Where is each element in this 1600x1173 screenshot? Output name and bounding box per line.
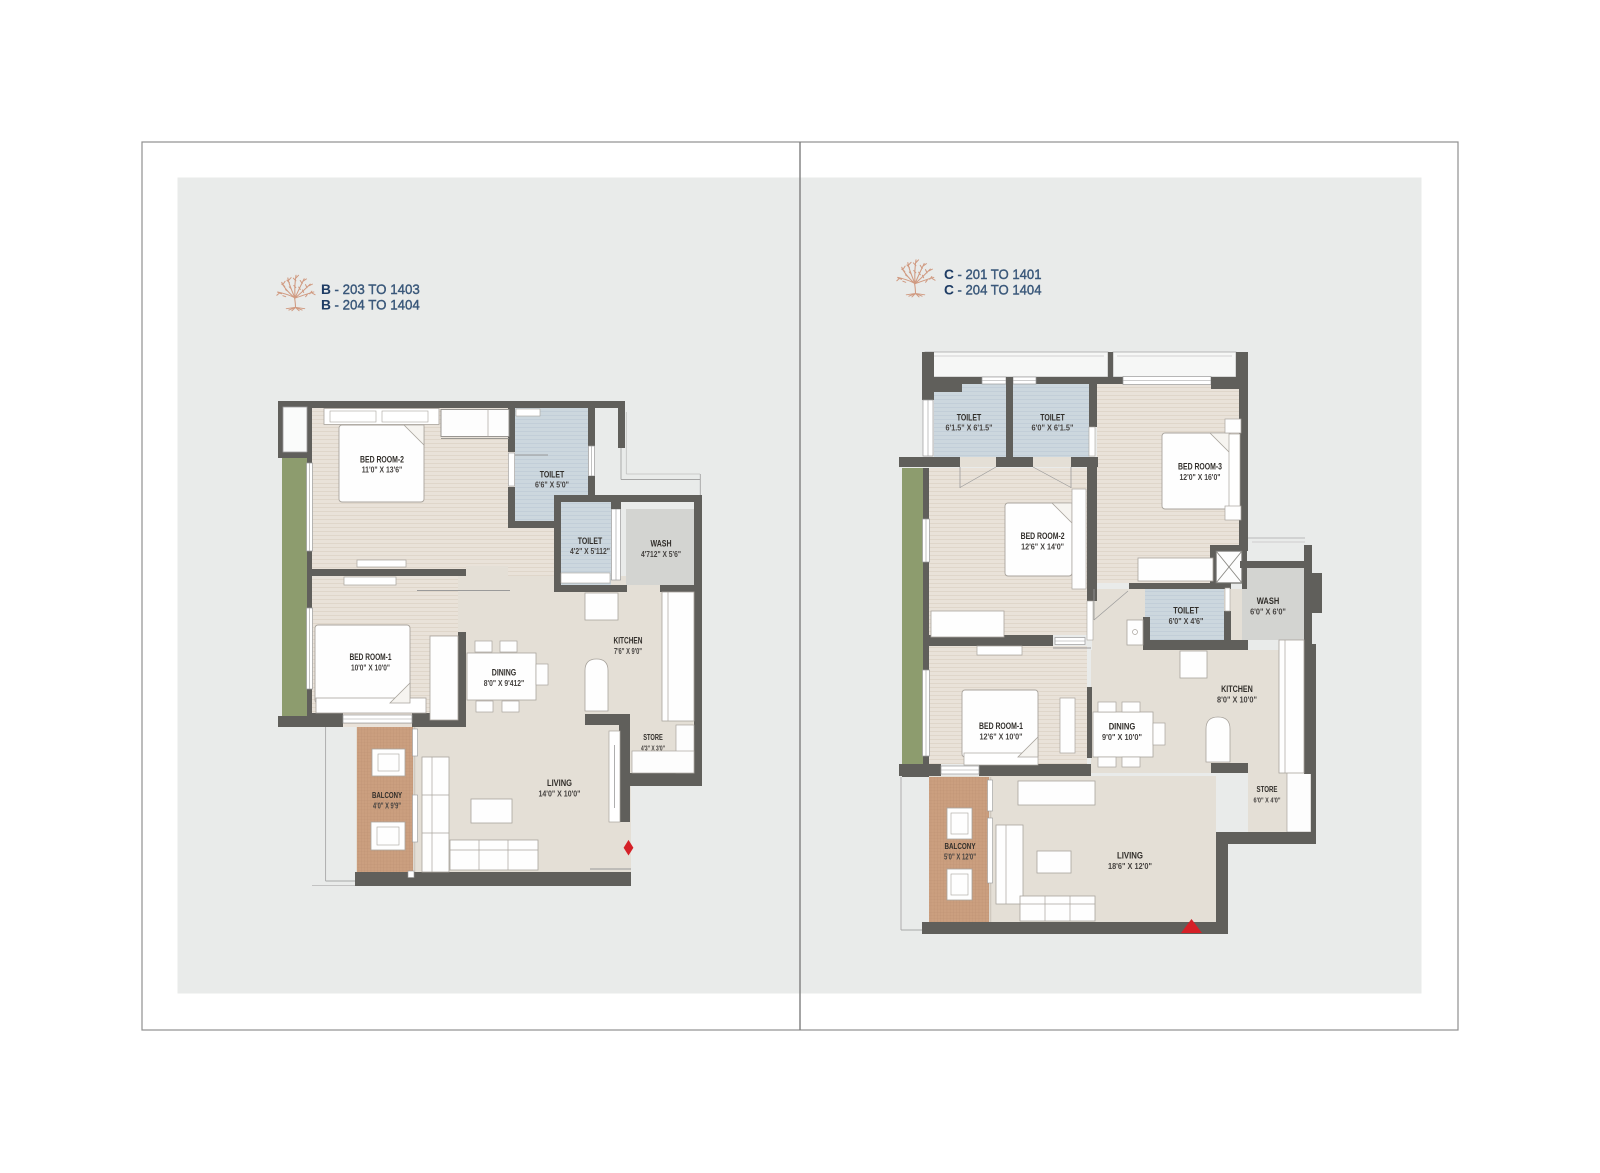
svg-text:KITCHEN: KITCHEN xyxy=(614,636,643,646)
svg-text:BED ROOM-3: BED ROOM-3 xyxy=(1178,462,1222,472)
svg-text:LIVING: LIVING xyxy=(547,778,572,788)
svg-text:STORE: STORE xyxy=(643,733,663,742)
svg-text:6'6" X 5'0": 6'6" X 5'0" xyxy=(535,480,569,490)
svg-text:6'0" X 6'0": 6'0" X 6'0" xyxy=(1250,607,1286,617)
svg-text:6'0" X 4'6": 6'0" X 4'6" xyxy=(1169,616,1204,626)
svg-text:LIVING: LIVING xyxy=(1117,851,1143,861)
svg-text:11'0" X 13'6": 11'0" X 13'6" xyxy=(362,465,403,475)
svg-text:10'0" X 10'0": 10'0" X 10'0" xyxy=(351,662,390,672)
svg-text:6'0" X 6'1.5": 6'0" X 6'1.5" xyxy=(1032,423,1074,433)
svg-text:BALCONY: BALCONY xyxy=(372,791,402,800)
svg-text:7'6" X 9'0": 7'6" X 9'0" xyxy=(614,646,642,656)
svg-text:5'0" X 12'0": 5'0" X 12'0" xyxy=(944,853,976,862)
svg-text:TOILET: TOILET xyxy=(1173,606,1199,616)
svg-text:BED ROOM-1: BED ROOM-1 xyxy=(979,721,1023,731)
svg-text:- 204 TO 1404: - 204 TO 1404 xyxy=(335,298,421,313)
svg-text:4'0" X 9'9": 4'0" X 9'9" xyxy=(373,802,401,811)
svg-text:DINING: DINING xyxy=(1109,722,1136,732)
svg-text:C: C xyxy=(944,267,954,282)
svg-text:8'0" X 10'0": 8'0" X 10'0" xyxy=(1217,695,1257,705)
svg-text:TOILET: TOILET xyxy=(540,469,565,479)
svg-text:6'0" X 4'0": 6'0" X 4'0" xyxy=(1254,796,1281,805)
svg-text:C: C xyxy=(944,283,954,298)
svg-text:4'2" X 5'112": 4'2" X 5'112" xyxy=(570,546,610,556)
svg-text:18'6" X 12'0": 18'6" X 12'0" xyxy=(1108,861,1152,871)
svg-text:TOILET: TOILET xyxy=(578,536,603,546)
svg-text:12'6" X 10'0": 12'6" X 10'0" xyxy=(980,732,1023,742)
svg-text:B: B xyxy=(321,282,331,297)
svg-text:BED ROOM-1: BED ROOM-1 xyxy=(350,652,392,662)
svg-text:- 203 TO 1403: - 203 TO 1403 xyxy=(335,282,421,297)
svg-text:12'0" X 16'0": 12'0" X 16'0" xyxy=(1180,472,1221,482)
svg-text:KITCHEN: KITCHEN xyxy=(1221,684,1253,694)
svg-text:BED ROOM-2: BED ROOM-2 xyxy=(1021,531,1065,541)
svg-text:BED ROOM-2: BED ROOM-2 xyxy=(360,454,404,464)
svg-text:BALCONY: BALCONY xyxy=(945,842,976,851)
svg-text:DINING: DINING xyxy=(492,668,516,678)
svg-text:8'0" X 9'412": 8'0" X 9'412" xyxy=(484,678,525,688)
svg-text:12'6" X 14'0": 12'6" X 14'0" xyxy=(1021,542,1064,552)
svg-text:- 201 TO 1401: - 201 TO 1401 xyxy=(958,267,1042,282)
svg-text:TOILET: TOILET xyxy=(1040,412,1065,422)
svg-text:STORE: STORE xyxy=(1257,785,1278,794)
svg-text:9'0" X 10'0": 9'0" X 10'0" xyxy=(1102,732,1142,742)
svg-text:B: B xyxy=(321,298,331,313)
svg-text:TOILET: TOILET xyxy=(957,412,982,422)
svg-text:WASH: WASH xyxy=(651,539,672,549)
svg-text:- 204 TO 1404: - 204 TO 1404 xyxy=(958,283,1042,298)
svg-text:4'712" X 5'6": 4'712" X 5'6" xyxy=(641,549,681,559)
svg-text:6'1.5" X 6'1.5": 6'1.5" X 6'1.5" xyxy=(946,423,993,433)
svg-text:WASH: WASH xyxy=(1257,596,1280,606)
svg-text:4'3" X 3'0": 4'3" X 3'0" xyxy=(641,743,665,752)
svg-text:14'0" X 10'0": 14'0" X 10'0" xyxy=(539,788,581,798)
